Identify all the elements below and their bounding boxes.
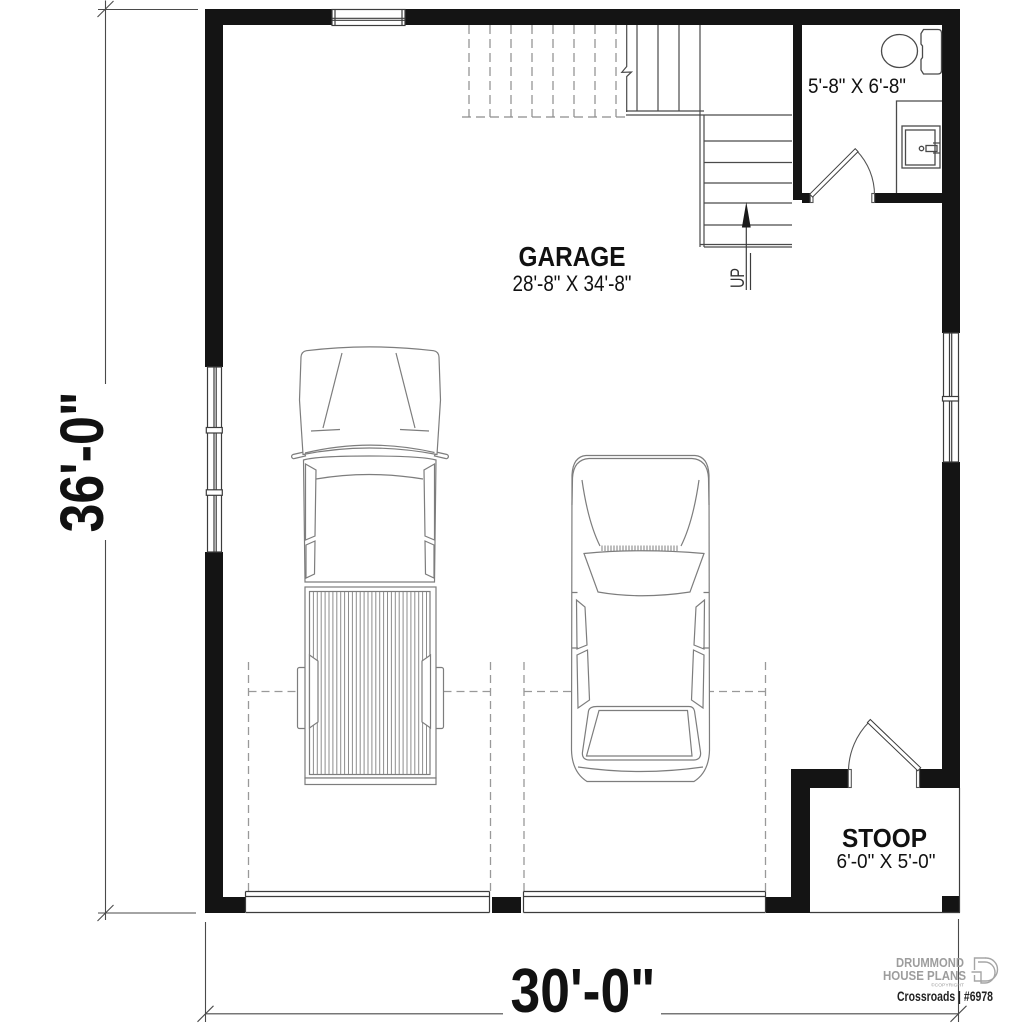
svg-text:Crossroads | #6978: Crossroads | #6978	[897, 989, 993, 1004]
svg-text:UP: UP	[728, 268, 749, 288]
svg-text:HOUSE PLANS: HOUSE PLANS	[883, 969, 966, 983]
svg-text:STOOP: STOOP	[842, 823, 927, 853]
svg-text:©COPYRIGHT: ©COPYRIGHT	[931, 982, 964, 988]
svg-text:28'-8" X 34'-8": 28'-8" X 34'-8"	[513, 271, 632, 296]
svg-text:6'-0" X 5'-0": 6'-0" X 5'-0"	[837, 851, 936, 873]
svg-text:DRUMMOND: DRUMMOND	[896, 956, 964, 970]
svg-text:GARAGE: GARAGE	[519, 241, 626, 272]
svg-text:30'-0": 30'-0"	[511, 957, 656, 1024]
svg-text:5'-8" X 6'-8": 5'-8" X 6'-8"	[808, 75, 906, 98]
svg-text:36'-0": 36'-0"	[48, 392, 116, 533]
